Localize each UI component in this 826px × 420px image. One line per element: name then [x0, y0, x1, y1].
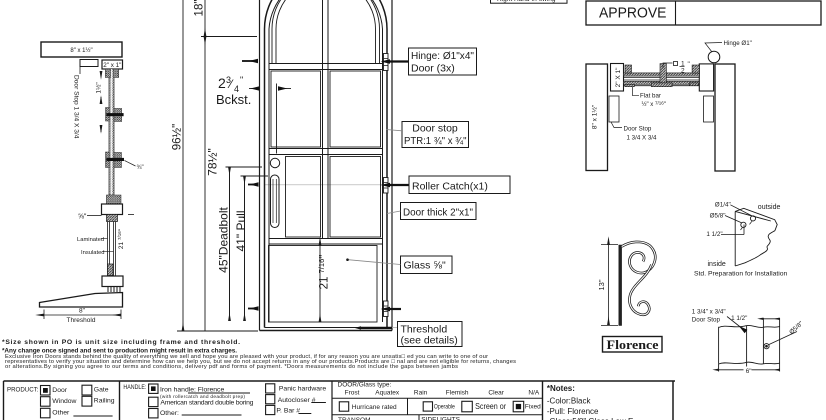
svg-text:(see details): (see details) [401, 335, 458, 347]
svg-text:Rain: Rain [414, 389, 428, 396]
svg-text:Florence: Florence [607, 338, 659, 352]
svg-text:1 3/4 X 3/4: 1 3/4 X 3/4 [627, 135, 657, 142]
svg-text:8" x 1½": 8" x 1½" [591, 104, 599, 129]
svg-text:Door Stop: Door Stop [624, 126, 652, 133]
svg-text:PTR:1 ¾" x ¾": PTR:1 ¾" x ¾" [404, 135, 467, 147]
svg-text:Screen or: Screen or [475, 402, 506, 411]
svg-text:45"Deadbolt: 45"Deadbolt [217, 207, 231, 273]
svg-text:Frost: Frost [345, 389, 360, 396]
svg-text:1 1/2": 1 1/2" [731, 315, 747, 322]
svg-text:13": 13" [597, 279, 606, 290]
svg-text:96½": 96½" [172, 124, 184, 150]
svg-text:SIDELIGHTS: SIDELIGHTS [421, 417, 460, 420]
svg-text:Flemish: Flemish [446, 389, 469, 396]
svg-text:2" x 1": 2" x 1" [103, 62, 121, 69]
svg-text:Hurricane rated: Hurricane rated [352, 404, 397, 411]
svg-text:8" x 1½": 8" x 1½" [70, 47, 92, 54]
svg-text:P. Bar #: P. Bar # [276, 407, 300, 414]
svg-text:Hinge: Ø1"x4": Hinge: Ø1"x4" [411, 50, 474, 62]
svg-text:Bckst.: Bckst. [216, 92, 251, 107]
svg-text:Aquatex: Aquatex [375, 389, 400, 396]
svg-text:2" X 1": 2" X 1" [615, 67, 622, 87]
svg-text:1½": 1½" [95, 82, 103, 94]
svg-text:DOOR/Glass type:: DOOR/Glass type: [338, 382, 392, 389]
svg-text:¾": ¾" [137, 165, 144, 171]
svg-text:American standard double borin: American standard double boring [160, 400, 253, 407]
svg-text:Iron handle: Florence: Iron handle: Florence [160, 386, 224, 393]
svg-text:6": 6" [746, 368, 752, 375]
svg-text:1: 1 [681, 61, 685, 68]
svg-text:Door (3x): Door (3x) [411, 63, 455, 75]
svg-text:*Notes:: *Notes: [547, 384, 575, 393]
svg-text:2: 2 [681, 68, 685, 75]
svg-text:-Color:Black: -Color:Black [547, 396, 592, 405]
svg-text:*Size shown in PO is unit size: *Size shown in PO is unit size including… [2, 339, 240, 346]
svg-text:Door: Door [52, 387, 67, 394]
svg-text:1 3/4" x 3/4": 1 3/4" x 3/4" [692, 309, 726, 316]
svg-text:Std. Preparation for Installat: Std. Preparation for Installation [694, 271, 788, 278]
svg-text:": " [240, 75, 243, 85]
svg-text:Insulated: Insulated [81, 250, 105, 256]
svg-text:Threshold: Threshold [67, 317, 96, 324]
svg-text:Door Stop: Door Stop [692, 317, 721, 324]
svg-text:8": 8" [79, 308, 86, 315]
svg-text:Operable: Operable [434, 404, 455, 411]
svg-text:Hinge Ø1": Hinge Ø1" [724, 40, 752, 47]
svg-text:PRODUCT:: PRODUCT: [7, 387, 39, 394]
svg-text:2: 2 [218, 75, 226, 91]
svg-text:⅝": ⅝" [78, 214, 87, 221]
svg-text:Railing: Railing [94, 398, 115, 405]
svg-text:Panic hardware: Panic hardware [279, 386, 326, 393]
svg-text:APPROVE: APPROVE [599, 6, 667, 22]
svg-text:outside: outside [758, 204, 781, 211]
svg-text:-Pull: Florence: -Pull: Florence [547, 407, 599, 416]
svg-text:Roller Catch(x1): Roller Catch(x1) [412, 181, 488, 193]
svg-text:Fixed: Fixed [525, 404, 541, 411]
svg-text:Other: Other [52, 410, 70, 417]
svg-text:HANDLE:: HANDLE: [123, 384, 146, 391]
svg-text:Laminated: Laminated [77, 237, 104, 243]
svg-text:Door stop: Door stop [412, 123, 458, 135]
svg-text:N/A: N/A [528, 389, 540, 396]
svg-text:78½": 78½" [206, 148, 220, 176]
svg-text:Door Stop 1 3/4 X 3/4: Door Stop 1 3/4 X 3/4 [73, 75, 80, 139]
svg-text:Ø5/8": Ø5/8" [710, 212, 726, 219]
svg-text:or alterations.By signing you: or alterations.By signing you agree to o… [5, 364, 458, 370]
svg-text:Door thick 2"x1": Door thick 2"x1" [403, 207, 473, 219]
svg-text:Window: Window [52, 398, 76, 405]
svg-text:Clear: Clear [488, 389, 504, 396]
svg-text:18": 18" [194, 0, 206, 16]
svg-text:inside: inside [708, 261, 726, 268]
svg-text:Right Hand In-swing: Right Hand In-swing [497, 0, 556, 3]
svg-text:1 1/2": 1 1/2" [706, 231, 722, 238]
svg-text:Other:: Other: [160, 410, 179, 417]
svg-text:Autocloser #: Autocloser # [278, 397, 316, 404]
svg-text:Glass ⅝": Glass ⅝" [404, 260, 447, 272]
svg-text:Flat bar: Flat bar [640, 93, 661, 100]
svg-text:Ø1/4": Ø1/4" [715, 202, 731, 209]
svg-text:Gate: Gate [94, 387, 109, 394]
svg-text:41" Pull: 41" Pull [234, 211, 248, 252]
